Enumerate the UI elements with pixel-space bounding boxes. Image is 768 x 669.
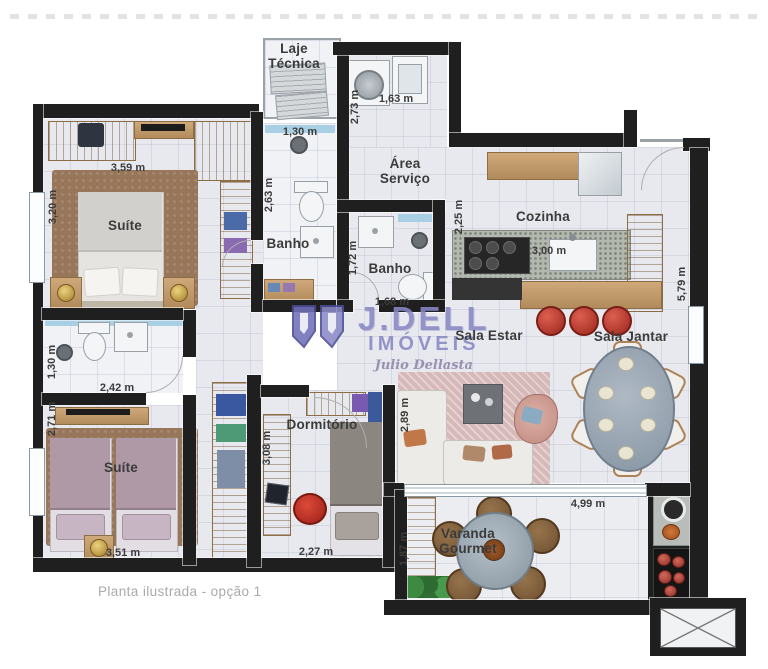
room-label-laje-tecnica: Laje Técnica xyxy=(266,42,322,71)
burner-4 xyxy=(469,257,482,270)
room-label-dormitorio: Dormitório xyxy=(287,418,358,433)
dorm-laptop xyxy=(265,483,290,506)
shelf-lower-item-green xyxy=(216,424,246,442)
measurement-label: 1,30 m xyxy=(283,126,317,138)
plan-caption: Planta ilustrada - opção 1 xyxy=(98,584,262,599)
dining-plate-3 xyxy=(640,386,656,400)
wall-segment xyxy=(247,375,261,567)
window-suite-second xyxy=(29,448,45,516)
measurement-label: 3,59 m xyxy=(111,162,145,174)
dining-plate-5 xyxy=(640,418,656,432)
burner-3 xyxy=(503,241,516,254)
measurement-label: 5,79 m xyxy=(676,267,688,301)
bbq-meat-2 xyxy=(672,556,685,568)
measurement-label: 2,63 m xyxy=(263,178,275,212)
measurement-label: 2,89 m xyxy=(399,398,411,432)
bbq-meat-3 xyxy=(658,570,672,584)
bbq-meat-1 xyxy=(657,553,671,566)
dorm-shelf-item xyxy=(368,392,382,422)
dorm-wardrobe-item xyxy=(352,394,368,412)
dining-plate-4 xyxy=(598,418,614,432)
room-label-cozinha: Cozinha xyxy=(516,210,570,225)
burner-2 xyxy=(486,241,499,254)
room-label-banho-social: Banho xyxy=(369,262,412,277)
window-suite-master xyxy=(29,192,45,283)
kitchen-island-bar xyxy=(520,281,662,309)
measurement-label: 3,00 m xyxy=(532,245,566,257)
elevator-shaft-panel xyxy=(660,608,736,648)
wall-segment xyxy=(33,104,259,118)
suite-master-pillow-right xyxy=(121,267,158,297)
floor-plan: J.DELL IMÓVEIS Julio Dellasta Laje Técni… xyxy=(0,0,768,669)
wall-segment xyxy=(183,310,196,357)
bath-third-sink-drain xyxy=(127,332,133,338)
bbq-meat-5 xyxy=(664,585,677,597)
measurement-label: 1,30 m xyxy=(46,345,58,379)
measurement-label: 3,20 m xyxy=(47,190,59,224)
burner-5 xyxy=(486,257,499,270)
kitchen-faucet xyxy=(569,234,576,241)
wall-segment xyxy=(33,558,395,572)
measurement-label: 4,99 m xyxy=(571,498,605,510)
shaft-x-icon xyxy=(661,609,735,647)
suite-master-closet xyxy=(194,121,253,181)
sofa-pillow-tan xyxy=(462,445,485,462)
wall-segment xyxy=(333,42,461,55)
room-label-banho-suite: Banho xyxy=(267,237,310,252)
wall-segment xyxy=(645,483,690,496)
entry-door-line xyxy=(640,139,683,142)
dorm-pillow xyxy=(335,512,379,540)
sofa-main xyxy=(443,440,533,485)
measurement-label: 1,87 m xyxy=(398,532,410,566)
wall-segment xyxy=(383,385,395,567)
wall-segment xyxy=(263,300,345,312)
wall-segment xyxy=(33,281,43,451)
wall-segment xyxy=(251,112,263,240)
coffee-table-decor-2 xyxy=(485,398,493,406)
banho-social-shower-glass xyxy=(398,214,432,222)
suite-master-clothes-box xyxy=(78,123,104,147)
wall-segment xyxy=(33,104,43,192)
wall-segment xyxy=(624,110,637,147)
boundary-dashed-line xyxy=(10,14,758,19)
bath-third-shower-head-icon xyxy=(56,344,73,361)
cabinet-towel-purple xyxy=(283,283,295,292)
suite-master-headboard xyxy=(74,301,166,308)
dining-plate-1 xyxy=(618,357,634,371)
dining-plate-2 xyxy=(598,386,614,400)
measurement-label: 2,27 m xyxy=(299,546,333,558)
measurement-label: 2,73 m xyxy=(349,90,361,124)
dorm-chair-red xyxy=(293,493,327,525)
wall-segment xyxy=(42,308,183,320)
sliding-door-varanda xyxy=(404,484,647,497)
measurement-label: 1,63 m xyxy=(379,93,413,105)
wall-segment xyxy=(261,385,309,397)
room-label-sala-estar: Sala Estar xyxy=(455,329,522,344)
banho-suite-toilet-bowl xyxy=(299,191,324,222)
room-label-varanda-gourmet: Varanda Gourmet xyxy=(421,527,515,556)
suite-master-pillow-left xyxy=(83,267,121,297)
suite-second-pillow-right xyxy=(122,514,171,540)
banho-suite-sink-drain xyxy=(313,238,319,244)
measurement-label: 1,72 m xyxy=(347,241,359,275)
refrigerator xyxy=(578,152,622,196)
suite-master-lamp-left xyxy=(57,284,75,302)
banho-social-shower-head-icon xyxy=(411,232,428,249)
sofa-pillow-rust xyxy=(491,444,512,460)
wall-segment xyxy=(449,42,461,145)
shelf-lower-item-blue xyxy=(216,394,246,416)
coffee-table-decor-1 xyxy=(471,393,480,402)
cabinet-towel-blue xyxy=(268,283,280,292)
bbq-plate xyxy=(662,524,680,540)
suite-second-tv xyxy=(66,409,130,415)
measurement-label: 2,25 m xyxy=(453,200,465,234)
suite-master-lamp-right xyxy=(170,284,188,302)
suite-second-blanket-left xyxy=(50,438,110,510)
shelf-item-blue xyxy=(224,212,247,230)
measurement-label: 2,71 m xyxy=(46,402,58,436)
kitchen-lower-cabinet xyxy=(452,278,522,300)
room-label-suite-second: Suíte xyxy=(104,461,138,476)
measurement-label: 3,51 m xyxy=(106,547,140,559)
wall-segment xyxy=(337,300,353,312)
wall-segment xyxy=(449,133,637,147)
dining-plate-6 xyxy=(618,446,634,460)
suite-master-tv xyxy=(141,124,185,131)
banho-suite-shower-head-icon xyxy=(290,136,308,154)
wall-segment xyxy=(690,148,708,605)
room-label-area-servico: Área Serviço xyxy=(375,157,435,186)
laundry-tank-basin xyxy=(398,64,422,94)
measurement-label: 3,08 m xyxy=(261,431,273,465)
measurement-label: 1,68 m xyxy=(375,296,409,308)
bar-stool-1 xyxy=(536,306,566,336)
bbq-sink xyxy=(661,497,686,522)
window-dining xyxy=(688,306,704,364)
wall-segment xyxy=(183,395,196,565)
wall-segment xyxy=(337,200,445,212)
kitchen-cabinet-top xyxy=(487,152,579,180)
measurement-label: 2,42 m xyxy=(100,382,134,394)
ac-condenser-2 xyxy=(275,91,329,120)
wall-segment xyxy=(251,264,263,312)
bbq-meat-4 xyxy=(673,572,685,584)
burner-1 xyxy=(469,241,482,254)
room-label-suite-master: Suíte xyxy=(108,219,142,234)
coffee-table xyxy=(463,384,503,424)
bath-third-toilet-bowl xyxy=(83,332,106,361)
shelf-lower-item-denim xyxy=(217,450,245,488)
room-label-sala-jantar: Sala Jantar xyxy=(594,330,668,345)
banho-social-sink-drain xyxy=(372,228,378,234)
wall-segment xyxy=(433,200,445,312)
